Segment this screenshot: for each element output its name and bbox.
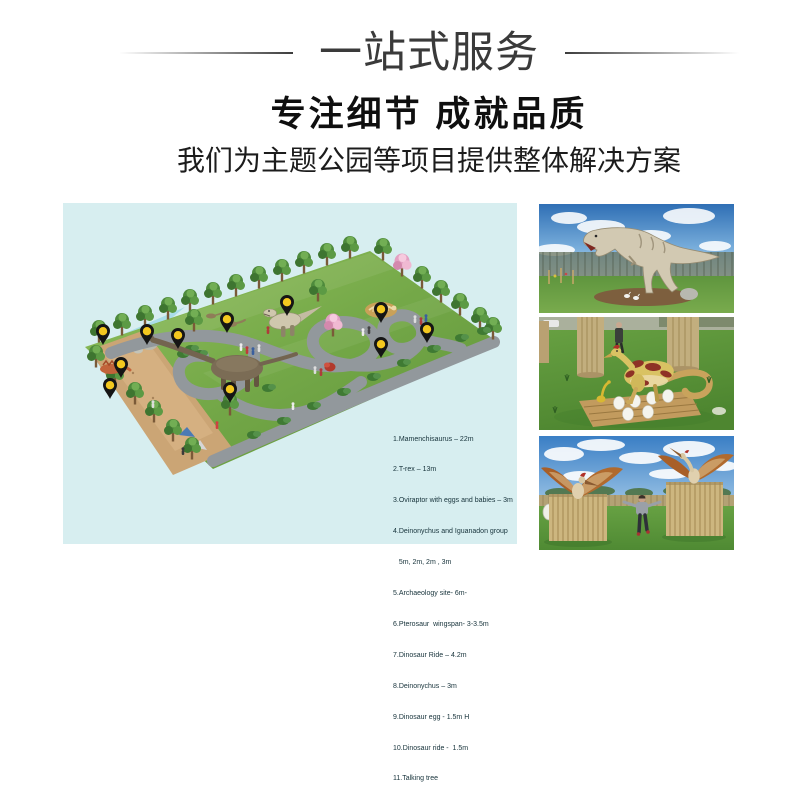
- map-legend: 1.Mamenchisaurus – 22m 2.T-rex – 13m 3.O…: [393, 414, 517, 805]
- legend-line: 9.Dinosaur egg - 1.5m H: [393, 713, 517, 723]
- plank-box-left: [549, 494, 607, 541]
- title-rule-left: [119, 52, 293, 54]
- legend-line: 10.Dinosaur ride - 1.5m: [393, 744, 517, 754]
- banner-title-row: 一站式服务: [58, 30, 800, 76]
- banner-title: 一站式服务: [319, 32, 539, 75]
- legend-line: 6.Pterosaur wingspan- 3-3.5m: [393, 620, 517, 630]
- legend-line: 1.Mamenchisaurus – 22m: [393, 435, 517, 445]
- legend-line: 5m, 2m, 2m , 3m: [393, 558, 517, 568]
- photo-column: [539, 204, 734, 554]
- title-rule-right: [565, 52, 739, 54]
- rock: [680, 288, 698, 300]
- mulch-bed: [594, 288, 694, 306]
- legend-line: 11.Talking tree: [393, 774, 517, 784]
- trex-photo: [539, 204, 734, 313]
- legend-line: 7.Dinosaur Ride – 4.2m: [393, 651, 517, 661]
- headline: 专注细节 成就品质: [58, 86, 800, 137]
- legend-line: 4.Deinonychus and Iguanadon group: [393, 527, 517, 537]
- park-map-panel: 1.Mamenchisaurus – 22m 2.T-rex – 13m 3.O…: [63, 203, 517, 544]
- promo-page: { "header": { "banner_title": "一站式服务", "…: [0, 0, 800, 626]
- plank-box-right: [666, 482, 723, 536]
- subheadline: 我们为主题公园等项目提供整体解决方案: [58, 139, 800, 179]
- oviraptor-eggs-photo: [539, 317, 734, 430]
- legend-line: 2.T-rex – 13m: [393, 465, 517, 475]
- legend-line: 5.Archaeology site- 6m-: [393, 589, 517, 599]
- pterosaur-photo: [539, 436, 734, 550]
- legend-line: 8.Deinonychus – 3m: [393, 682, 517, 692]
- legend-line: 3.Oviraptor with eggs and babies – 3m: [393, 496, 517, 506]
